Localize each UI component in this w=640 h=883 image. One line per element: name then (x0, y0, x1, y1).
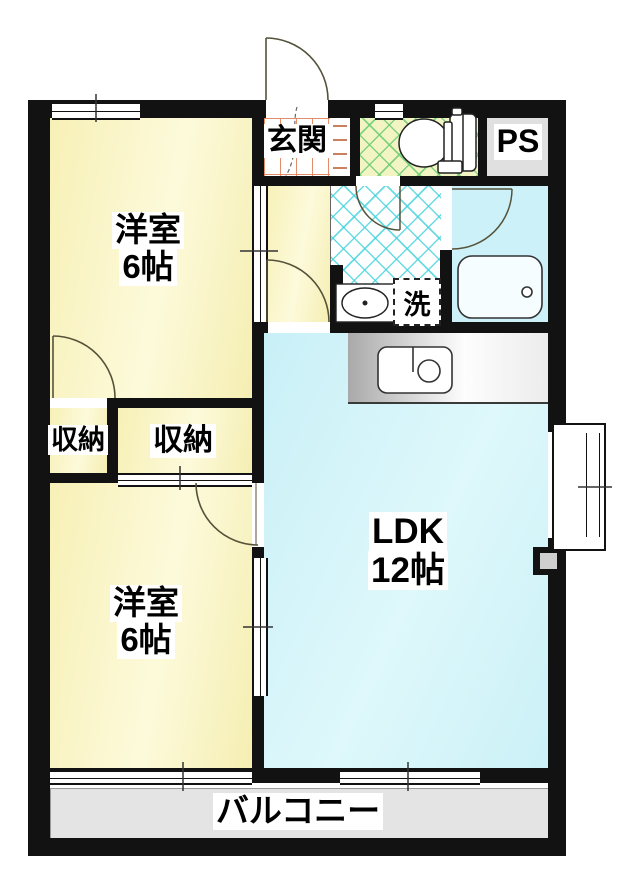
wall-wash-bath (440, 250, 452, 322)
room2-size: 6帖 (117, 622, 174, 659)
ldk-name: LDK (369, 512, 447, 551)
wall-closet-bottom (28, 473, 118, 483)
wall-closet-top (107, 398, 264, 408)
label-closet-left: 収納 (46, 425, 110, 455)
closet-left-name: 収納 (48, 425, 108, 455)
label-closet-right: 収納 (150, 424, 216, 458)
wall-spine-c (252, 547, 264, 558)
label-room1: 洋室 6帖 (85, 212, 211, 286)
bay-window-glass (586, 433, 600, 537)
corridor (264, 186, 330, 322)
room1-size: 6帖 (119, 249, 176, 286)
kitchen-counter (348, 333, 548, 404)
bathroom (452, 186, 548, 322)
label-balcony: バルコニー (200, 793, 396, 830)
door-opening-corridor-ldk (268, 322, 330, 333)
window-room2-ldk (252, 558, 268, 696)
closet-right-name: 収納 (150, 424, 216, 458)
wall-entry-band (252, 176, 566, 186)
floor-plan: 洋室 6帖 玄関 PS 収納 収納 洗 洋室 6帖 LDK 12帖 バルコニー (0, 0, 640, 883)
wall-outer-bottom (28, 838, 566, 856)
window-room2-bottom (50, 770, 252, 785)
label-laundry: 洗 (393, 278, 441, 326)
wall-toilet-ps (478, 118, 487, 176)
laundry-name: 洗 (404, 283, 431, 322)
room1-name: 洋室 (112, 212, 184, 249)
genkan-name: 玄関 (264, 124, 330, 158)
sliding-door-room1 (252, 186, 268, 322)
label-ps: PS (489, 124, 547, 160)
label-room2: 洋室 6帖 (83, 585, 209, 659)
window-ldk-bottom (340, 770, 480, 785)
door-opening-closet-left (50, 398, 107, 408)
entry-door-opening (266, 100, 328, 118)
bay-block-inset (540, 553, 557, 569)
ps-name: PS (494, 124, 543, 160)
ldk-size: 12帖 (368, 551, 448, 590)
balcony-name: バルコニー (213, 793, 383, 830)
sliding-door-closet-right (118, 473, 252, 487)
room2-name: 洋室 (110, 585, 182, 622)
window-toilet (375, 102, 403, 120)
label-ldk: LDK 12帖 (345, 512, 471, 590)
door-opening-room2 (252, 483, 264, 547)
label-genkan: 玄関 (258, 124, 336, 158)
door-opening-toilet (356, 176, 400, 186)
wall-step-toilet (350, 118, 360, 176)
wall-spine-d (252, 696, 264, 768)
entrance-door-swing-icon (266, 38, 328, 100)
toilet-room (360, 118, 478, 176)
wall-corridor-wash (330, 265, 343, 322)
window-room1-top (52, 102, 140, 120)
